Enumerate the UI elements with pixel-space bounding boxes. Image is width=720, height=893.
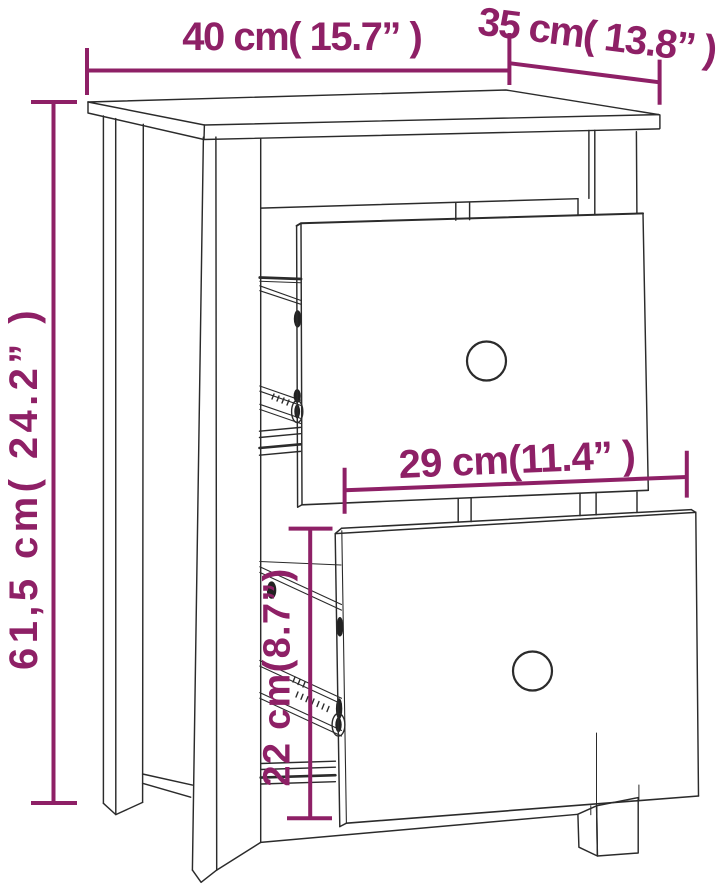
svg-text:61,5 cm( 24.2” ): 61,5 cm( 24.2” ): [2, 306, 46, 670]
svg-text:22 cm(8.7”): 22 cm(8.7”): [257, 567, 299, 786]
svg-text:40 cm( 15.7” ): 40 cm( 15.7” ): [182, 15, 421, 59]
